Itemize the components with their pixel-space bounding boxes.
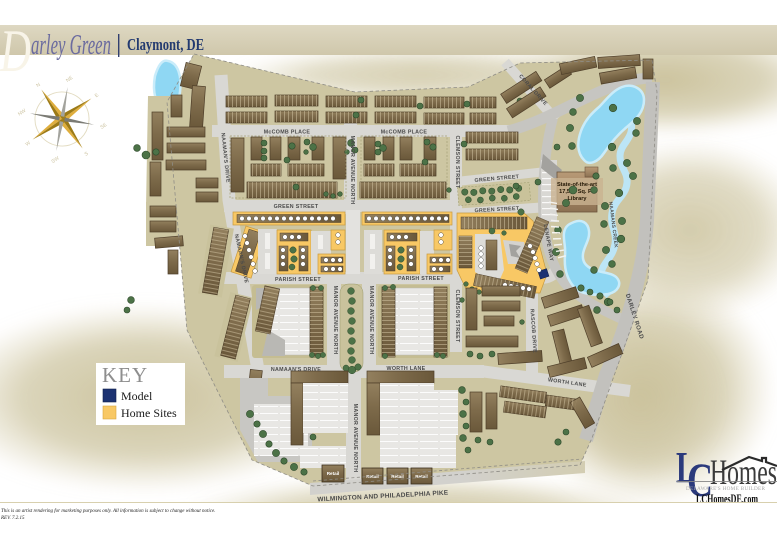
svg-text:State-of-the-art: State-of-the-art: [557, 182, 597, 188]
svg-text:REV. 7.2.15: REV. 7.2.15: [0, 516, 25, 521]
svg-text:Retail: Retail: [415, 474, 428, 479]
svg-text:Model: Model: [121, 389, 153, 403]
svg-text:CLEMSON STREET: CLEMSON STREET: [454, 289, 460, 343]
svg-text:PARISH STREET: PARISH STREET: [398, 276, 444, 282]
svg-text:Home Sites: Home Sites: [121, 406, 177, 420]
svg-text:Retail: Retail: [327, 471, 340, 476]
svg-text:CLEMSON STREET: CLEMSON STREET: [454, 135, 460, 189]
svg-text:MANOR AVENUE NORTH: MANOR AVENUE NORTH: [352, 404, 358, 473]
svg-text:MANOR AVENUE NORTH: MANOR AVENUE NORTH: [368, 286, 374, 355]
svg-text:McCOMB PLACE: McCOMB PLACE: [381, 130, 428, 136]
svg-text:NAMAAN'S DRIVE: NAMAAN'S DRIVE: [271, 367, 321, 373]
svg-text:GREEN STREET: GREEN STREET: [274, 204, 319, 210]
svg-text:MANOR AVENUE NORTH: MANOR AVENUE NORTH: [332, 286, 338, 355]
svg-text:KEY: KEY: [102, 363, 148, 387]
svg-text:Retail: Retail: [391, 474, 404, 479]
svg-text:This is an artist rendering fo: This is an artist rendering for marketin…: [1, 509, 215, 514]
svg-text:D: D: [0, 18, 31, 84]
svg-text:arley Green: arley Green: [31, 30, 111, 61]
svg-text:Claymont, DE: Claymont, DE: [127, 35, 204, 54]
svg-text:McCOMB PLACE: McCOMB PLACE: [264, 130, 311, 136]
svg-text:WORTH LANE: WORTH LANE: [387, 366, 426, 372]
svg-text:PARISH STREET: PARISH STREET: [275, 277, 321, 283]
svg-text:Library: Library: [568, 196, 588, 202]
svg-text:MANOR AVENUE NORTH: MANOR AVENUE NORTH: [349, 136, 355, 205]
